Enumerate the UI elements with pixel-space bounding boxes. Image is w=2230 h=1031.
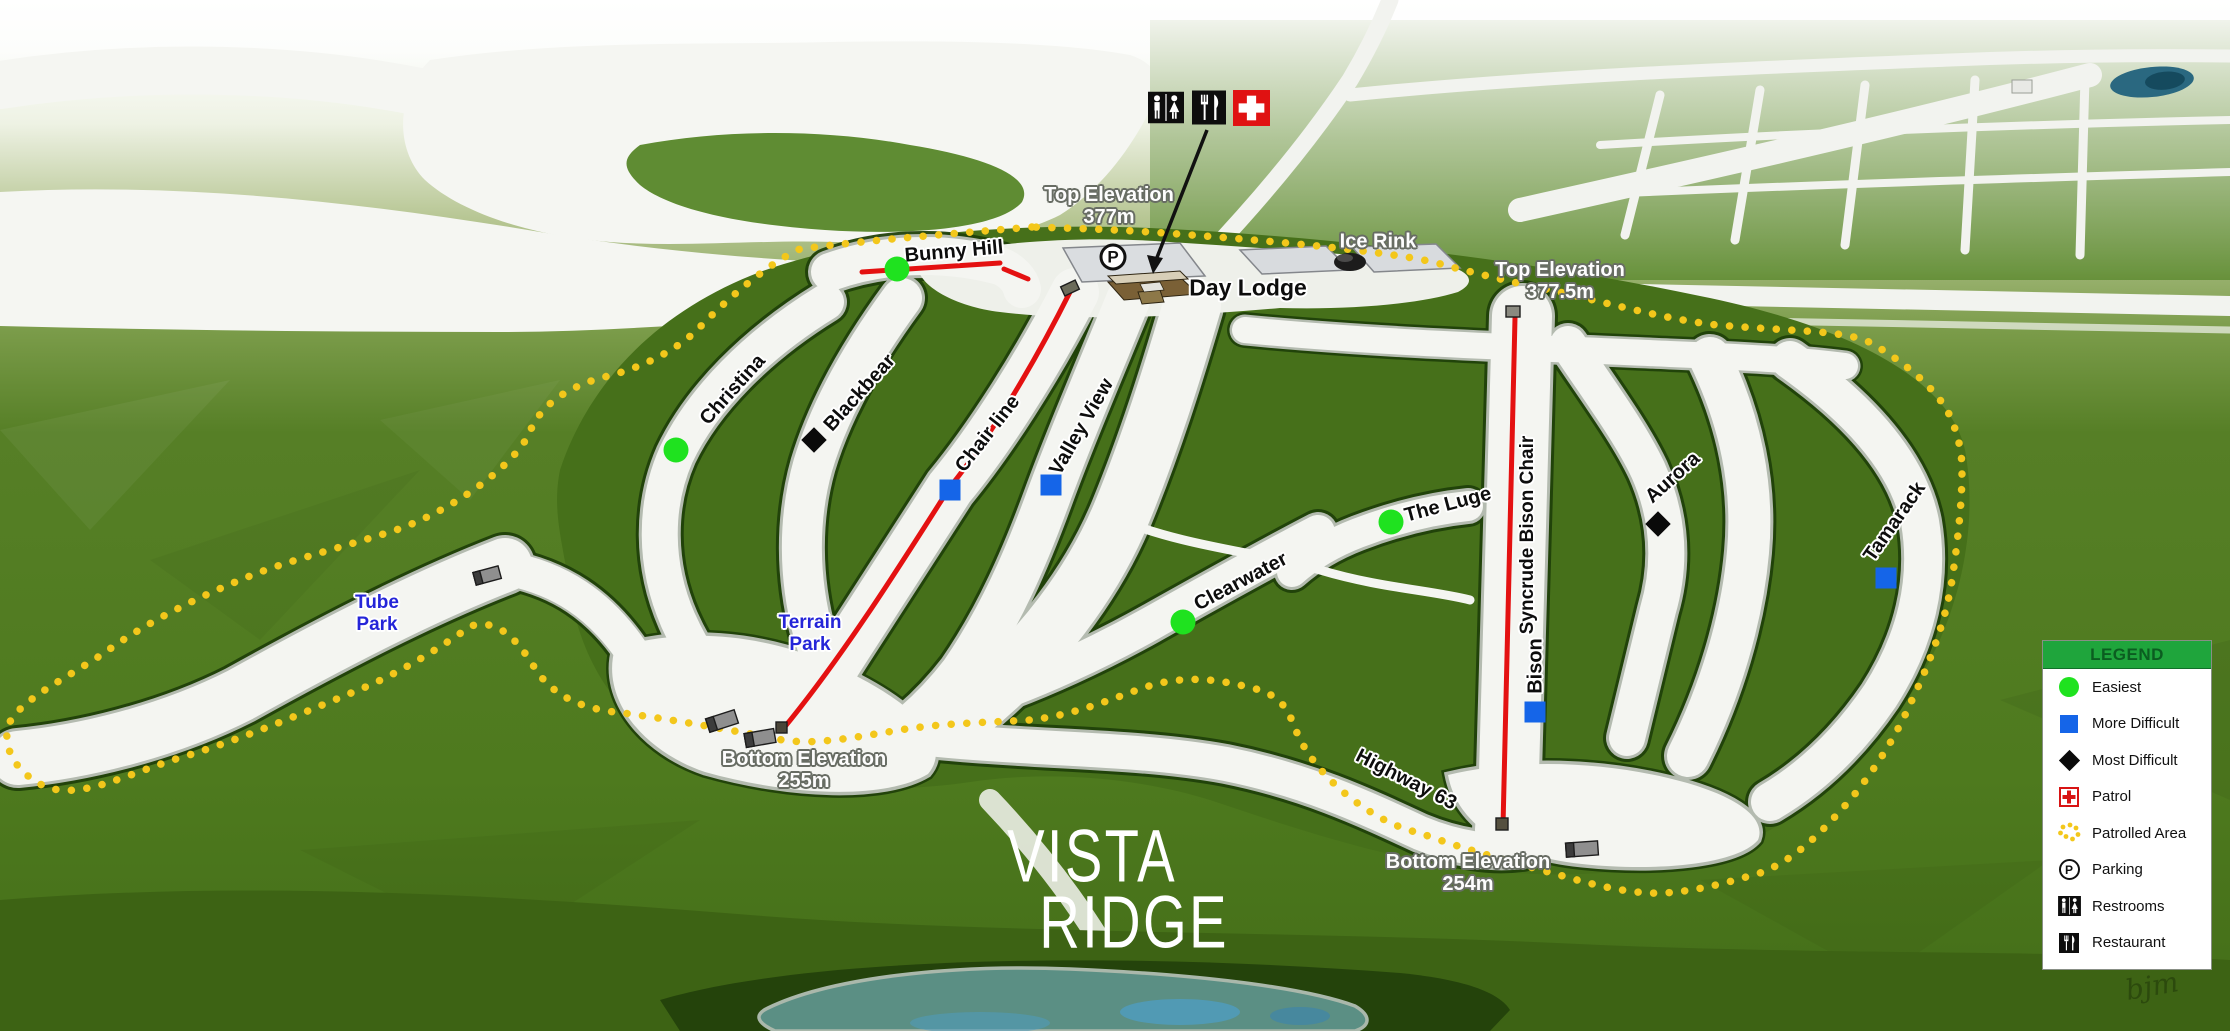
terrain-park-line2: Park xyxy=(778,634,841,656)
patrolled-area-icon xyxy=(2055,822,2083,844)
bottom-elevation-east-line2: 254m xyxy=(1386,873,1550,895)
most-difficult-icon xyxy=(2055,753,2083,768)
parking-letter: P xyxy=(2059,859,2080,880)
small-building xyxy=(2012,80,2032,93)
easiest-marker-the-luge xyxy=(1379,510,1404,535)
legend-title: LEGEND xyxy=(2043,641,2211,669)
legend-item-parking: P Parking xyxy=(2043,852,2211,889)
easiest-icon xyxy=(2055,677,2083,697)
legend-box: LEGEND Easiest More Difficult Most Diffi… xyxy=(2042,640,2212,970)
bottom-elevation-east-line1: Bottom Elevation xyxy=(1386,851,1550,873)
legend-label: More Difficult xyxy=(2092,715,2179,732)
legend-item-restrooms: Restrooms xyxy=(2043,888,2211,925)
tube-park-line2: Park xyxy=(355,614,399,636)
restaurant-icon xyxy=(2055,933,2083,953)
easiest-marker-clearwater xyxy=(1171,610,1196,635)
restrooms-icon xyxy=(2055,896,2083,916)
legend-label: Restrooms xyxy=(2092,898,2165,915)
legend-item-most-difficult: Most Difficult xyxy=(2043,742,2211,779)
easiest-marker-christina xyxy=(664,438,689,463)
legend-label: Easiest xyxy=(2092,679,2141,696)
tube-park-line1: Tube xyxy=(355,592,399,614)
restaurant-icon xyxy=(1192,88,1226,127)
day-lodge-label: Day Lodge xyxy=(1189,275,1307,302)
trail-label-bison: Bison xyxy=(1525,638,1548,694)
top-elevation-west-line1: Top Elevation xyxy=(1044,184,1174,206)
bottom-elevation-west: Bottom Elevation 255m xyxy=(722,748,886,792)
bottom-elevation-east: Bottom Elevation 254m xyxy=(1386,851,1550,895)
easiest-marker-bunny-hill xyxy=(885,257,910,282)
terrain-park-line1: Terrain xyxy=(778,612,841,634)
ice-rink-label: Ice Rink xyxy=(1340,231,1417,254)
vista-ridge-trail-map: Bunny Hill Christina Blackbear Chair lin… xyxy=(0,0,2230,1031)
legend-label: Restaurant xyxy=(2092,934,2165,951)
area-label-tube-park: Tube Park xyxy=(355,592,399,636)
parking-letter: P xyxy=(1107,247,1118,267)
top-elevation-west-line2: 377m xyxy=(1044,206,1174,228)
top-elevation-east: Top Elevation 377.5m xyxy=(1495,259,1625,303)
restrooms-icon xyxy=(1148,88,1184,127)
resort-logo-line2: RIDGE xyxy=(1039,880,1229,965)
legend-item-patrolled-area: Patrolled Area xyxy=(2043,815,2211,852)
more-difficult-marker-chair-line xyxy=(940,480,961,501)
top-elevation-east-line1: Top Elevation xyxy=(1495,259,1625,281)
more-difficult-icon xyxy=(2055,715,2083,733)
parking-badge: P xyxy=(1100,244,1127,271)
area-label-terrain-park: Terrain Park xyxy=(778,612,841,656)
parking-icon: P xyxy=(2055,859,2083,880)
patrol-icon xyxy=(2055,787,2083,807)
more-difficult-marker-bison xyxy=(1525,702,1546,723)
legend-item-easiest: Easiest xyxy=(2043,669,2211,706)
legend-item-restaurant: Restaurant xyxy=(2043,925,2211,962)
more-difficult-marker-tamarack xyxy=(1876,568,1897,589)
legend-label: Most Difficult xyxy=(2092,752,2178,769)
lift-label-syncrude-bison-chair: Syncrude Bison Chair xyxy=(1517,436,1539,635)
patrol-icon xyxy=(1233,89,1270,127)
legend-label: Patrolled Area xyxy=(2092,825,2186,842)
legend-item-more-difficult: More Difficult xyxy=(2043,706,2211,743)
more-difficult-marker-valley-view xyxy=(1041,475,1062,496)
legend-label: Parking xyxy=(2092,861,2143,878)
top-elevation-west: Top Elevation 377m xyxy=(1044,184,1174,228)
legend-label: Patrol xyxy=(2092,788,2131,805)
top-elevation-east-line2: 377.5m xyxy=(1495,281,1625,303)
bottom-elevation-west-line1: Bottom Elevation xyxy=(722,748,886,770)
legend-item-patrol: Patrol xyxy=(2043,779,2211,816)
bottom-elevation-west-line2: 255m xyxy=(722,770,886,792)
